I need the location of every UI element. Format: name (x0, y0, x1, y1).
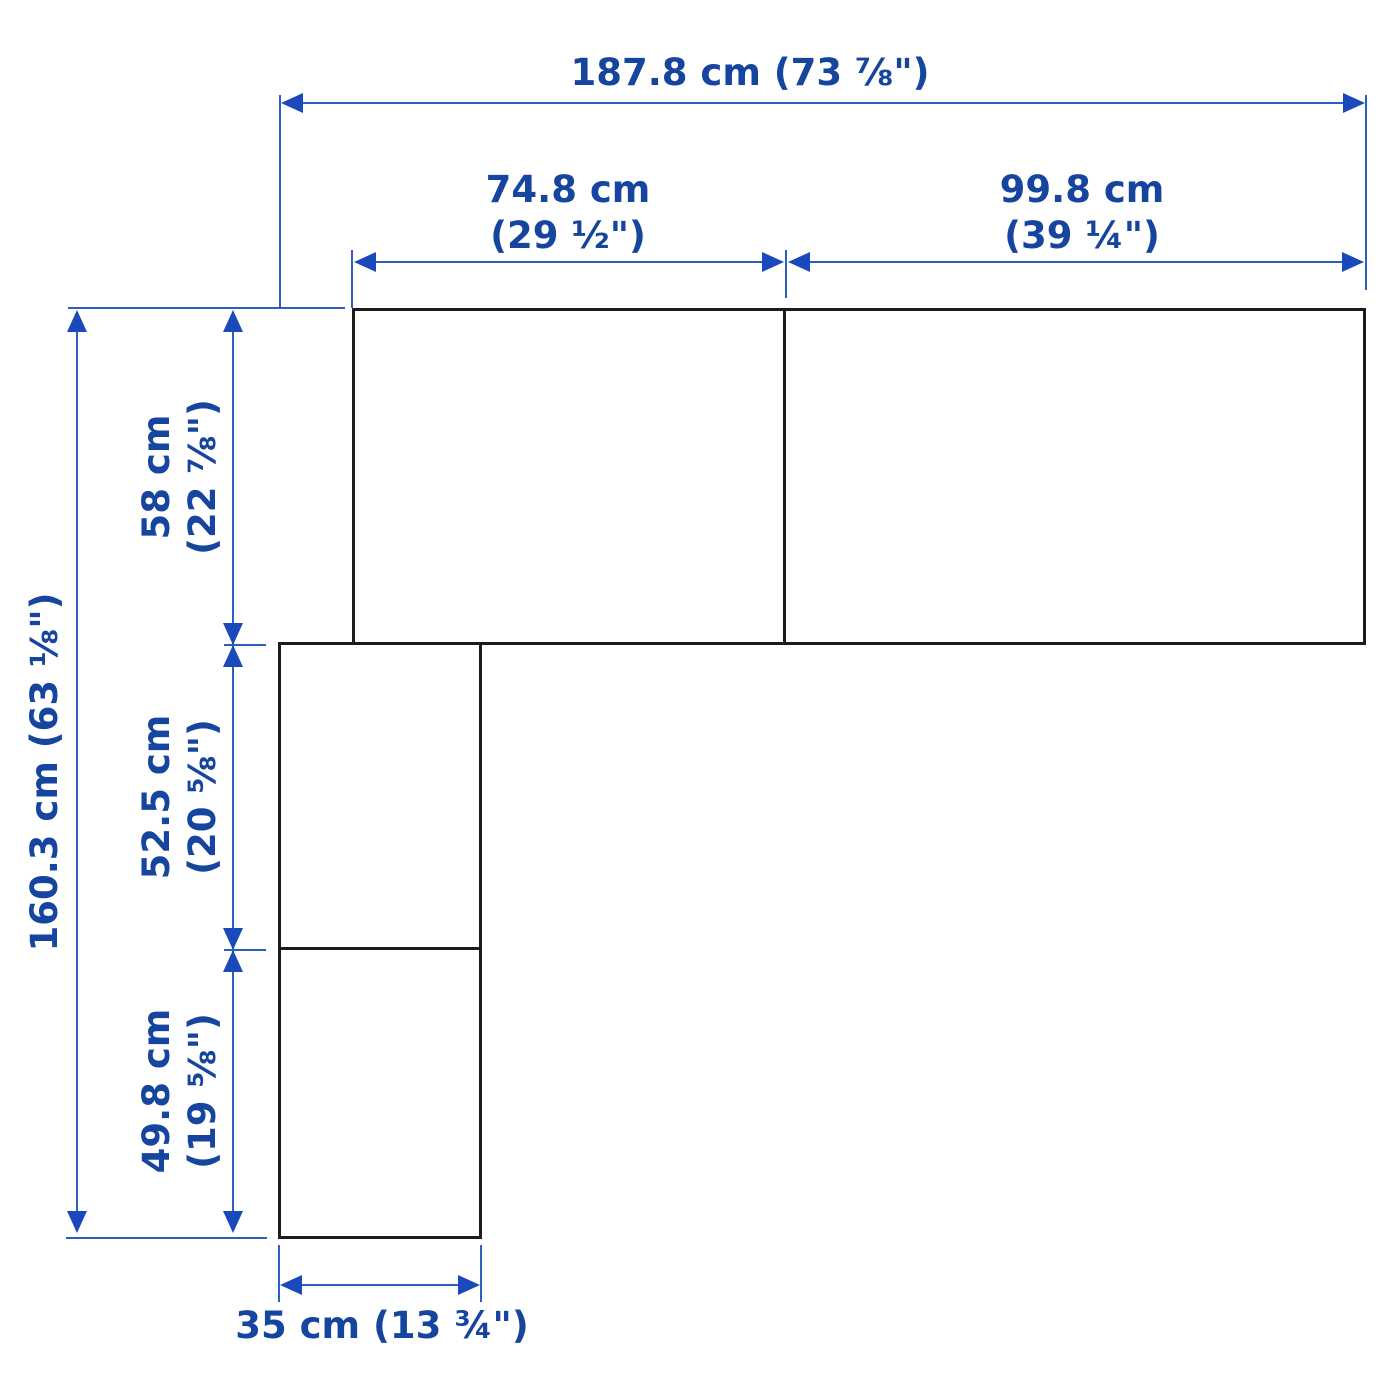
extension-line (480, 1245, 482, 1302)
extension-line (1365, 95, 1367, 290)
extension-line (351, 250, 353, 308)
arrowhead-up-icon (223, 310, 243, 332)
middle-height-label: 52.5 cm (20 ⅝") (134, 647, 226, 947)
arrowhead-up-icon (223, 950, 243, 972)
top-left-width-label: 74.8 cm (29 ½") (418, 167, 718, 259)
arrowhead-right-icon (1343, 93, 1365, 113)
middle-height-inch: (20 ⅝") (180, 647, 226, 947)
dimension-diagram: 187.8 cm (73 ⅞") 74.8 cm (29 ½") 99.8 cm… (0, 0, 1400, 1400)
extension-line (68, 307, 345, 309)
arrowhead-down-icon (223, 1211, 243, 1233)
lower-height-inch: (19 ⅝") (180, 941, 226, 1241)
top-right-width-label: 99.8 cm (39 ¼") (932, 167, 1232, 259)
arrowhead-right-icon (458, 1275, 480, 1295)
upper-height-inch: (22 ⅞") (180, 327, 226, 627)
arrowhead-left-icon (280, 1275, 302, 1295)
column-width-label: 35 cm (13 ¾") (182, 1303, 582, 1349)
column-width-dimension-line (284, 1284, 476, 1286)
arrowhead-up-icon (223, 645, 243, 667)
top-left-width-inch: (29 ½") (418, 213, 718, 259)
top-right-width-dimension-line (790, 261, 1362, 263)
extension-line (224, 949, 266, 951)
lower-height-cm: 49.8 cm (134, 941, 180, 1241)
segment-height-dimension-line (232, 314, 234, 1229)
unit-top-right-rect (783, 308, 1366, 645)
arrowhead-down-icon (67, 1211, 87, 1233)
total-width-label: 187.8 cm (73 ⅞") (450, 50, 1050, 96)
unit-column-upper-rect (278, 642, 482, 950)
total-height-label: 160.3 cm (63 ⅛") (23, 472, 67, 1072)
middle-height-cm: 52.5 cm (134, 647, 180, 947)
arrowhead-right-icon (762, 252, 784, 272)
extension-line (224, 644, 266, 646)
top-right-width-inch: (39 ¼") (932, 213, 1232, 259)
arrowhead-left-icon (354, 252, 376, 272)
arrowhead-up-icon (67, 310, 87, 332)
upper-height-cm: 58 cm (134, 327, 180, 627)
arrowhead-right-icon (1342, 252, 1364, 272)
arrowhead-left-icon (788, 252, 810, 272)
total-height-dimension-line (76, 314, 78, 1229)
lower-height-label: 49.8 cm (19 ⅝") (134, 941, 226, 1241)
unit-column-lower-rect (278, 947, 482, 1239)
extension-line (785, 250, 787, 298)
total-width-dimension-line (283, 102, 1363, 104)
top-right-width-cm: 99.8 cm (932, 167, 1232, 213)
arrowhead-down-icon (223, 623, 243, 645)
arrowhead-left-icon (281, 93, 303, 113)
top-left-width-cm: 74.8 cm (418, 167, 718, 213)
top-left-width-dimension-line (356, 261, 782, 263)
unit-top-left-rect (352, 308, 786, 645)
extension-line (279, 95, 281, 308)
upper-height-label: 58 cm (22 ⅞") (134, 327, 226, 627)
arrowhead-down-icon (223, 928, 243, 950)
